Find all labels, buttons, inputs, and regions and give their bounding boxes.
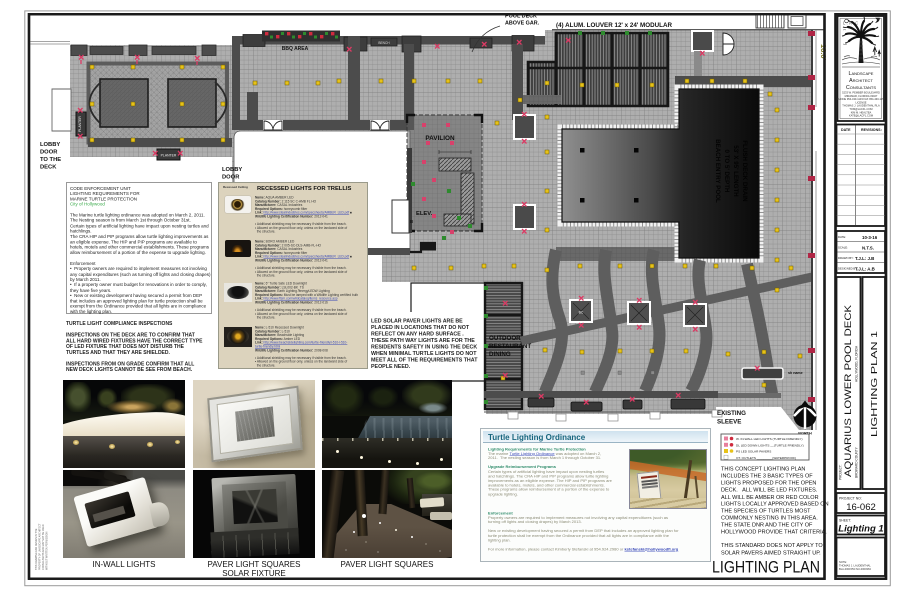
svg-text:BC: BC [579, 311, 584, 315]
svg-text:PS LED SOLAR PAVERS: PS LED SOLAR PAVERS [736, 450, 771, 454]
svg-text:LOBBY: LOBBY [222, 167, 242, 173]
svg-text:DECK: DECK [40, 165, 57, 171]
svg-text:SHEET:: SHEET: [839, 519, 851, 523]
svg-text:SLEEVE: SLEEVE [717, 419, 741, 426]
svg-text:T.J.L: A.B: T.J.L: A.B [855, 267, 875, 272]
svg-text:53' X 95' LENGTH: 53' X 95' LENGTH [732, 145, 739, 197]
svg-text:BENCH: BENCH [378, 41, 390, 45]
svg-text:0 TO 5' DEPTH: 0 TO 5' DEPTH [723, 150, 730, 193]
svg-text:OT. OUTLETS _________(WATERPR: OT. OUTLETS _________(WATERPROOF) [736, 456, 796, 460]
svg-text:N.T.S.: N.T.S. [862, 246, 874, 251]
svg-text:TO THE: TO THE [40, 157, 61, 163]
svg-text:BBQ AREA: BBQ AREA [282, 46, 309, 52]
svg-text:LOBBY: LOBBY [40, 142, 60, 148]
svg-text:DINING: DINING [489, 351, 511, 358]
svg-text:ELEV.: ELEV. [416, 211, 433, 217]
svg-text:PAVILION: PAVILION [425, 135, 455, 142]
svg-text:THOMAS J. LAUDENTHAL: THOMAS J. LAUDENTHAL [839, 564, 871, 568]
svg-text:T.J.L: J.B: T.J.L: J.B [855, 256, 874, 261]
svg-text:sh name: sh name [788, 371, 803, 375]
svg-text:W. IN-WALL LED LIGHTS (TURTLE: W. IN-WALL LED LIGHTS (TURTLE FRIENDLY) [736, 437, 803, 441]
svg-text:WITHOUT WRITTEN PERMISSION: WITHOUT WRITTEN PERMISSION [46, 531, 49, 570]
svg-text:10-3-16: 10-3-16 [862, 235, 878, 240]
svg-text:REVISIONS:: REVISIONS: [861, 128, 882, 132]
svg-text:KATE@LACFL.COM: KATE@LACFL.COM [849, 114, 873, 118]
svg-text:Lighting 1: Lighting 1 [838, 524, 883, 535]
svg-text:BLA-0001553 ISU-0000363: BLA-0001553 ISU-0000363 [839, 567, 871, 571]
svg-text:DOOR: DOOR [222, 175, 240, 181]
svg-text:LIGHTING PLAN 1: LIGHTING PLAN 1 [869, 331, 879, 437]
svg-text:B: B [410, 219, 413, 224]
svg-text:PROJECT:: PROJECT: [839, 464, 843, 480]
svg-text:16.0': 16.0' [819, 44, 828, 61]
svg-text:DATE:: DATE: [838, 235, 846, 239]
svg-text:ABOVE GAR.: ABOVE GAR. [505, 21, 540, 27]
svg-text:FLUSH DECK DRAIN: FLUSH DECK DRAIN [741, 140, 748, 202]
svg-text:16-062: 16-062 [846, 502, 876, 513]
svg-text:AQUARIUS LOWER POOL DECK: AQUARIUS LOWER POOL DECK [843, 305, 853, 477]
svg-text:BEACH ENTRY POOL: BEACH ENTRY POOL [714, 139, 721, 203]
svg-text:DRAWN BY:: DRAWN BY: [838, 256, 854, 260]
svg-text:PLANTER: PLANTER [78, 116, 82, 132]
svg-text:HOLLYWOOD, FLORIDA: HOLLYWOOD, FLORIDA [855, 345, 859, 382]
svg-text:LIGHTING PLAN: LIGHTING PLAN [712, 558, 820, 577]
svg-text:SCALE:: SCALE: [838, 246, 848, 250]
svg-text:NOTE:: NOTE: [839, 560, 847, 564]
svg-text:DATE: DATE [841, 128, 851, 132]
svg-text:POOL DECK: POOL DECK [505, 14, 537, 20]
svg-text:PROJECT NO:: PROJECT NO: [839, 497, 862, 501]
svg-text:OUTDOOR: OUTDOOR [489, 335, 521, 342]
svg-text:BROWARD COUNTY: BROWARD COUNTY [855, 446, 859, 478]
svg-text:DOOR: DOOR [40, 150, 58, 156]
svg-text:EXISTING: EXISTING [717, 410, 746, 417]
svg-text:PLANTER: PLANTER [161, 154, 177, 158]
svg-text:DL LED DOWN LIGHTS __(TURTLE: DL LED DOWN LIGHTS __(TURTLE FRIENDLY) [736, 443, 804, 447]
svg-text:(4) ALUM. LOUVER 12' x 24' MOD: (4) ALUM. LOUVER 12' x 24' MODULAR [556, 22, 672, 29]
